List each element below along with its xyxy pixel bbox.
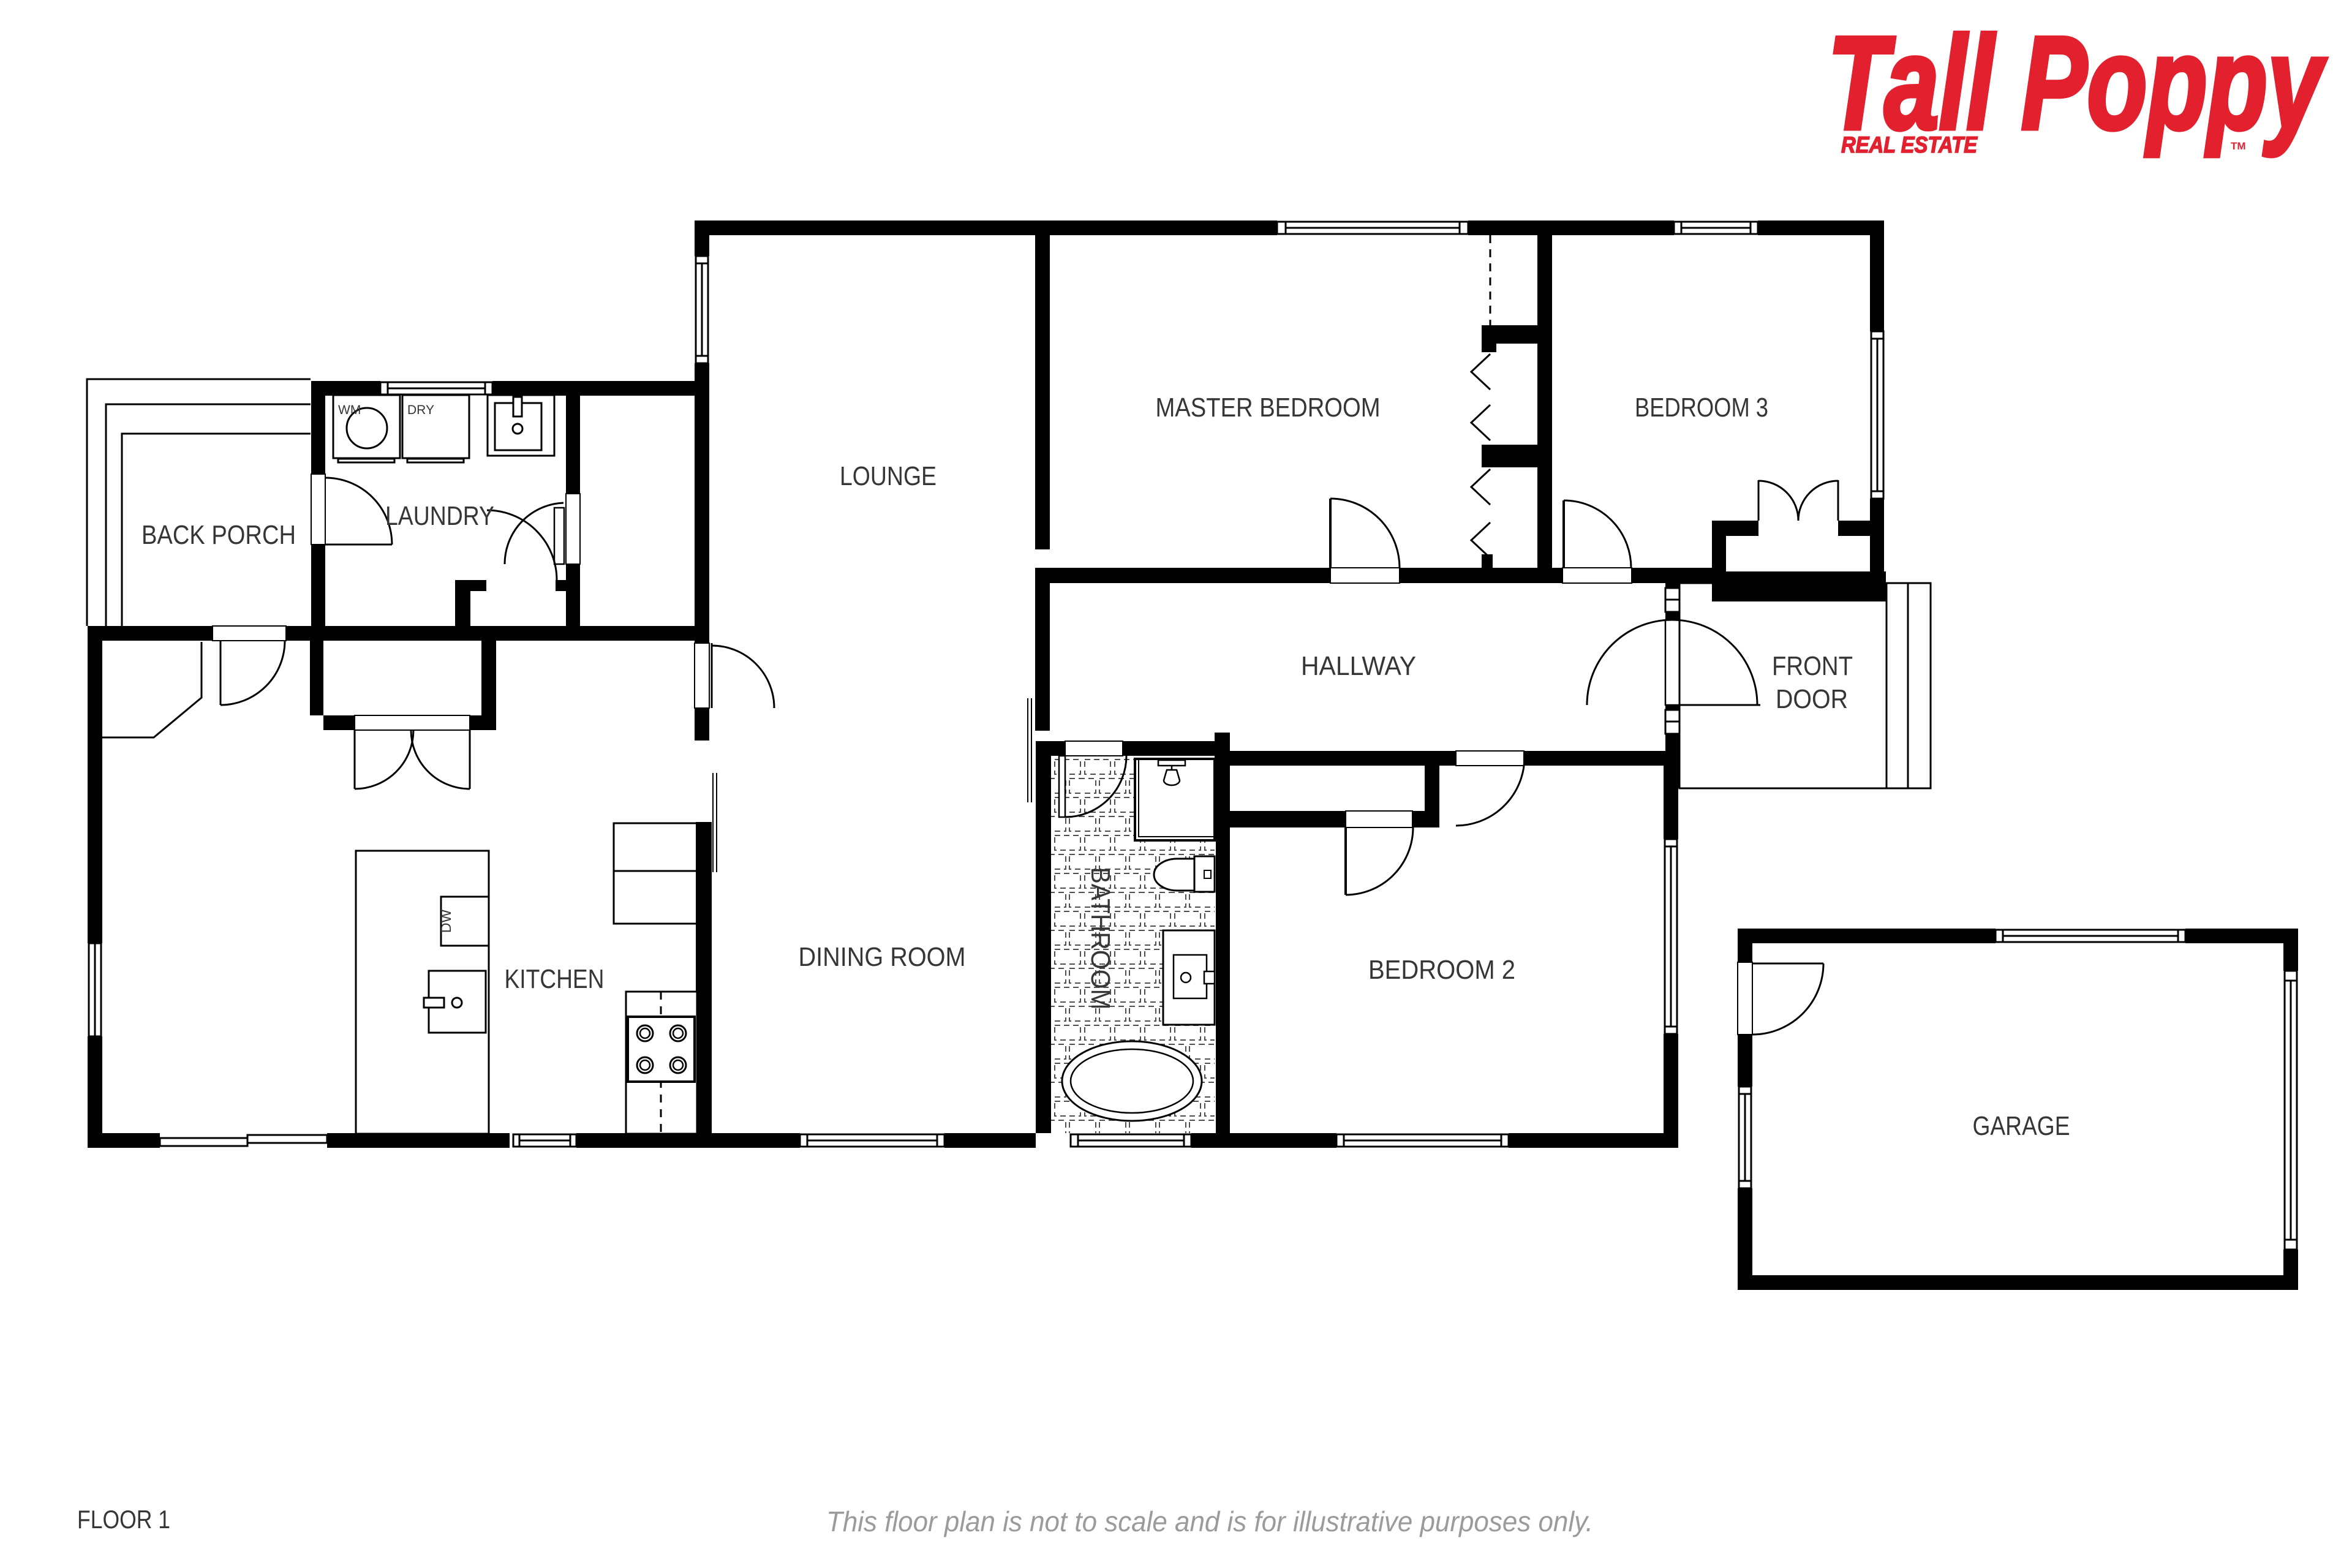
svg-text:BACK PORCH: BACK PORCH <box>141 520 296 550</box>
svg-text:FRONT: FRONT <box>1772 651 1853 681</box>
svg-text:DOOR: DOOR <box>1776 684 1848 714</box>
svg-text:GARAGE: GARAGE <box>1973 1111 2070 1141</box>
svg-text:KITCHEN: KITCHEN <box>505 964 605 994</box>
svg-text:DRY: DRY <box>407 403 434 417</box>
svg-text:BEDROOM 2: BEDROOM 2 <box>1368 955 1515 985</box>
svg-text:LOUNGE: LOUNGE <box>840 461 937 491</box>
svg-text:TM: TM <box>2231 140 2246 152</box>
svg-text:BEDROOM 3: BEDROOM 3 <box>1635 393 1768 423</box>
svg-text:This floor plan is not to scal: This floor plan is not to scale and is f… <box>826 1506 1593 1537</box>
svg-text:DW: DW <box>438 910 454 933</box>
svg-text:MASTER BEDROOM: MASTER BEDROOM <box>1156 393 1381 423</box>
svg-text:DINING ROOM: DINING ROOM <box>799 942 966 972</box>
svg-text:FLOOR 1: FLOOR 1 <box>77 1505 170 1534</box>
svg-text:REAL ESTATE: REAL ESTATE <box>1841 132 1978 157</box>
svg-text:HALLWAY: HALLWAY <box>1301 651 1416 681</box>
svg-text:LAUNDRY: LAUNDRY <box>385 501 494 531</box>
svg-text:WM: WM <box>338 403 361 417</box>
svg-text:BATHROOM: BATHROOM <box>1085 867 1115 1010</box>
